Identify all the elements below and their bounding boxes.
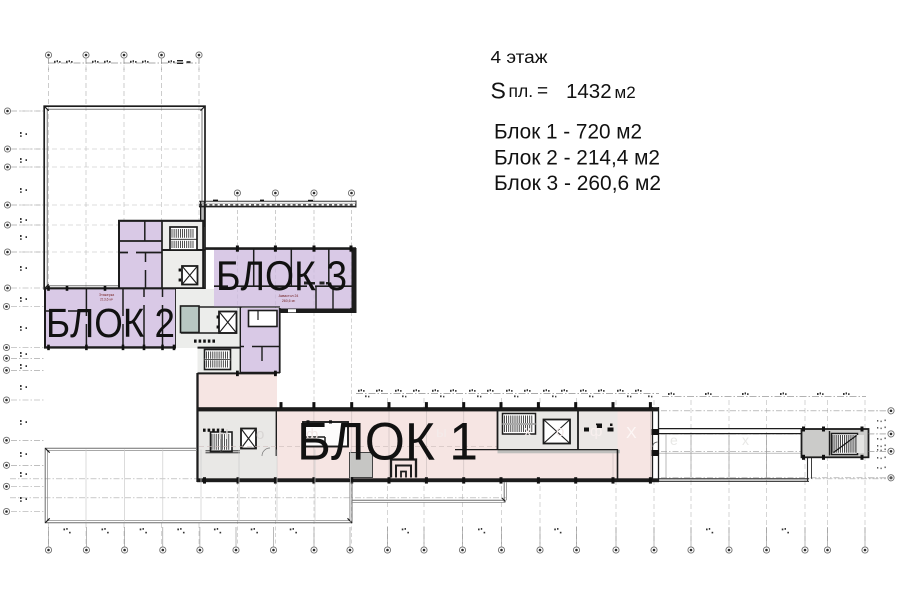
svg-text:х: х — [524, 423, 532, 440]
svg-text:Блок 2 - 214,4 м2: Блок 2 - 214,4 м2 — [494, 146, 660, 169]
svg-text:о: о — [256, 426, 264, 443]
svg-text:4 этаж: 4 этаж — [491, 47, 548, 67]
svg-text:Блок 3 - 260,6 м2: Блок 3 - 260,6 м2 — [494, 172, 661, 195]
svg-text:БЛОК 2: БЛОК 2 — [46, 300, 175, 346]
svg-text:х: х — [742, 432, 749, 448]
svg-text:Н: Н — [218, 426, 229, 443]
svg-text:БЛОК 3: БЛОК 3 — [216, 252, 347, 299]
svg-text:ф: ф — [590, 423, 602, 440]
svg-text:БЛОК 1: БЛОК 1 — [297, 413, 478, 472]
svg-text:е: е — [670, 432, 678, 448]
svg-text:260,6 м²: 260,6 м² — [282, 299, 296, 303]
svg-text:Блок 1 - 720 м2: Блок 1 - 720 м2 — [494, 121, 642, 144]
svg-text:Х: Х — [626, 425, 637, 442]
svg-text:Этажерка: Этажерка — [99, 293, 114, 297]
svg-text:о: о — [556, 423, 564, 440]
